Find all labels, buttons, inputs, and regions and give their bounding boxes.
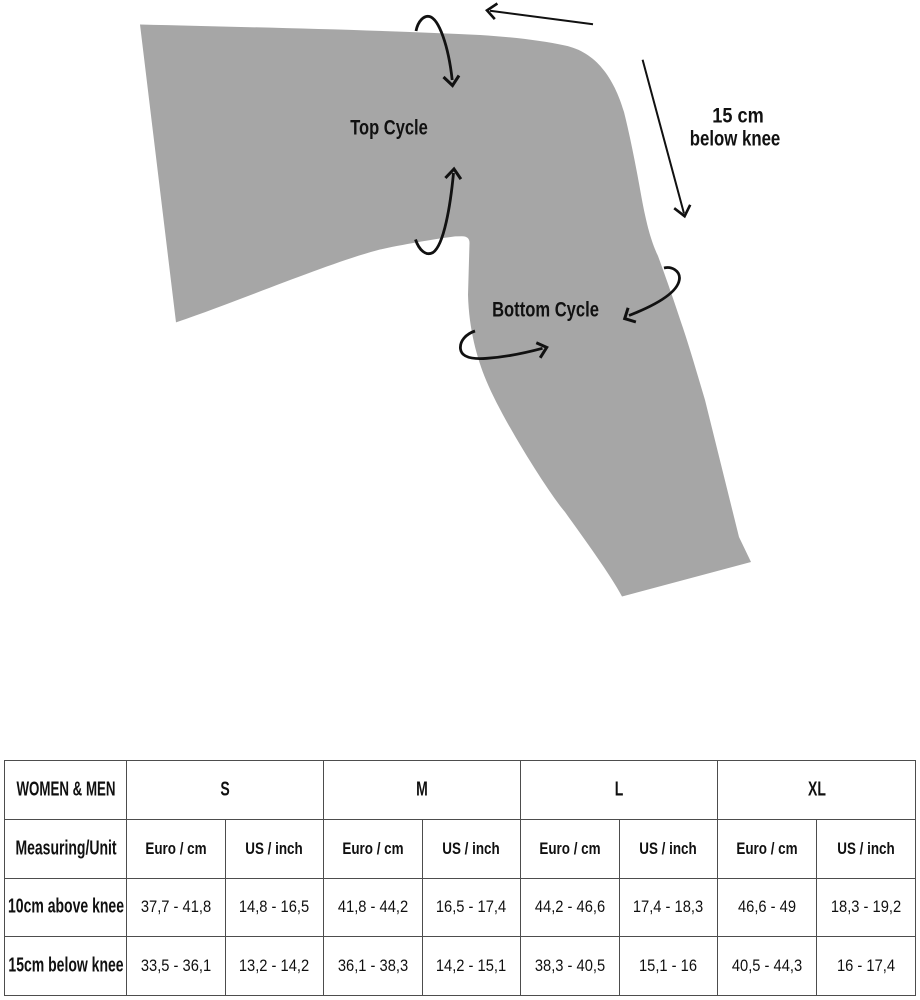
svg-text:Bottom Cycle: Bottom Cycle xyxy=(492,299,599,322)
svg-text:below knee: below knee xyxy=(690,128,780,151)
svg-text:Top Cycle: Top Cycle xyxy=(350,117,428,140)
svg-text:15 cm: 15 cm xyxy=(712,104,763,128)
